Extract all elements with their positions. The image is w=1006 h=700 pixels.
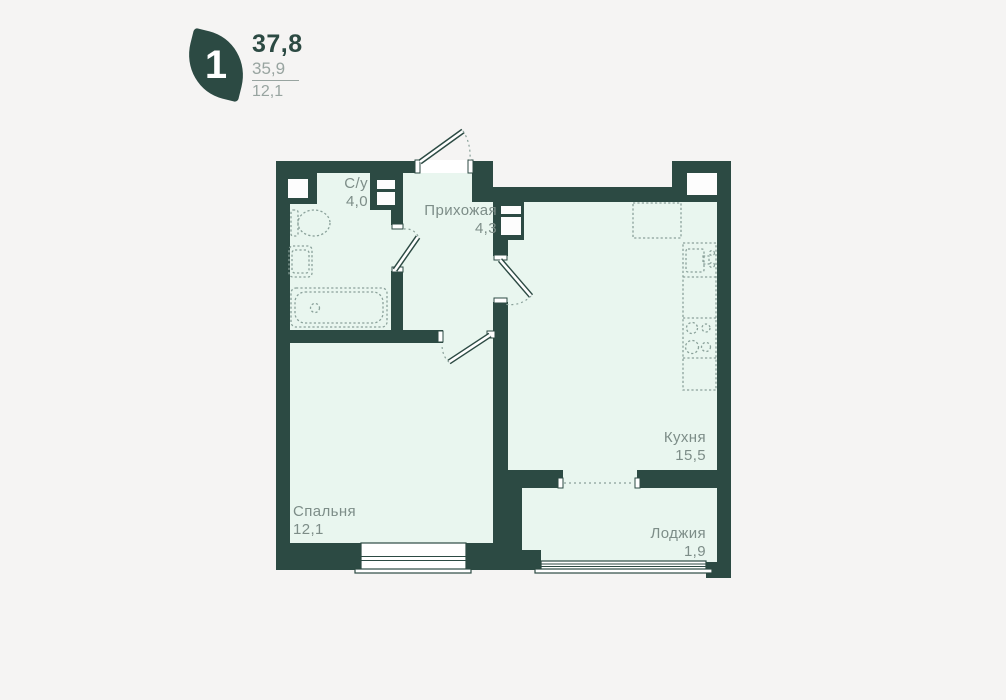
entrance-door [415, 131, 473, 173]
kitchen-sink-icon [686, 249, 715, 272]
room-area: 15,5 [616, 447, 706, 465]
loggia-opening [558, 478, 640, 488]
bedroom-door [438, 331, 495, 362]
kitchen-counter-icon [683, 243, 716, 390]
room-label-kitchen: Кухня 15,5 [616, 429, 706, 465]
bathtub-icon [291, 288, 387, 327]
room-name: Спальня [293, 503, 356, 520]
room-name: С/у [344, 175, 368, 192]
room-label-bathroom: С/у 4,0 [298, 175, 368, 211]
room-area: 1,9 [616, 543, 706, 561]
plan-overlay [0, 0, 1006, 700]
room-name: Прихожая [424, 202, 497, 219]
room-name: Кухня [664, 429, 706, 446]
loggia-window [535, 561, 712, 573]
room-area: 4,3 [400, 220, 497, 238]
room-label-hallway: Прихожая 4,3 [400, 202, 497, 238]
kitchen-door [494, 255, 531, 305]
bedroom-window [355, 543, 471, 573]
room-label-bedroom: Спальня 12,1 [293, 503, 403, 539]
floorplan-page: 1 37,8 35,9 12,1 [0, 0, 1006, 700]
kitchen-cabinet-icon [633, 203, 681, 238]
room-area: 12,1 [293, 521, 403, 539]
sink-icon [289, 246, 312, 277]
room-label-loggia: Лоджия 1,9 [616, 525, 706, 561]
stove-icon [686, 323, 711, 354]
toilet-icon [291, 210, 330, 236]
room-area: 4,0 [298, 193, 368, 211]
room-name: Лоджия [650, 525, 706, 542]
